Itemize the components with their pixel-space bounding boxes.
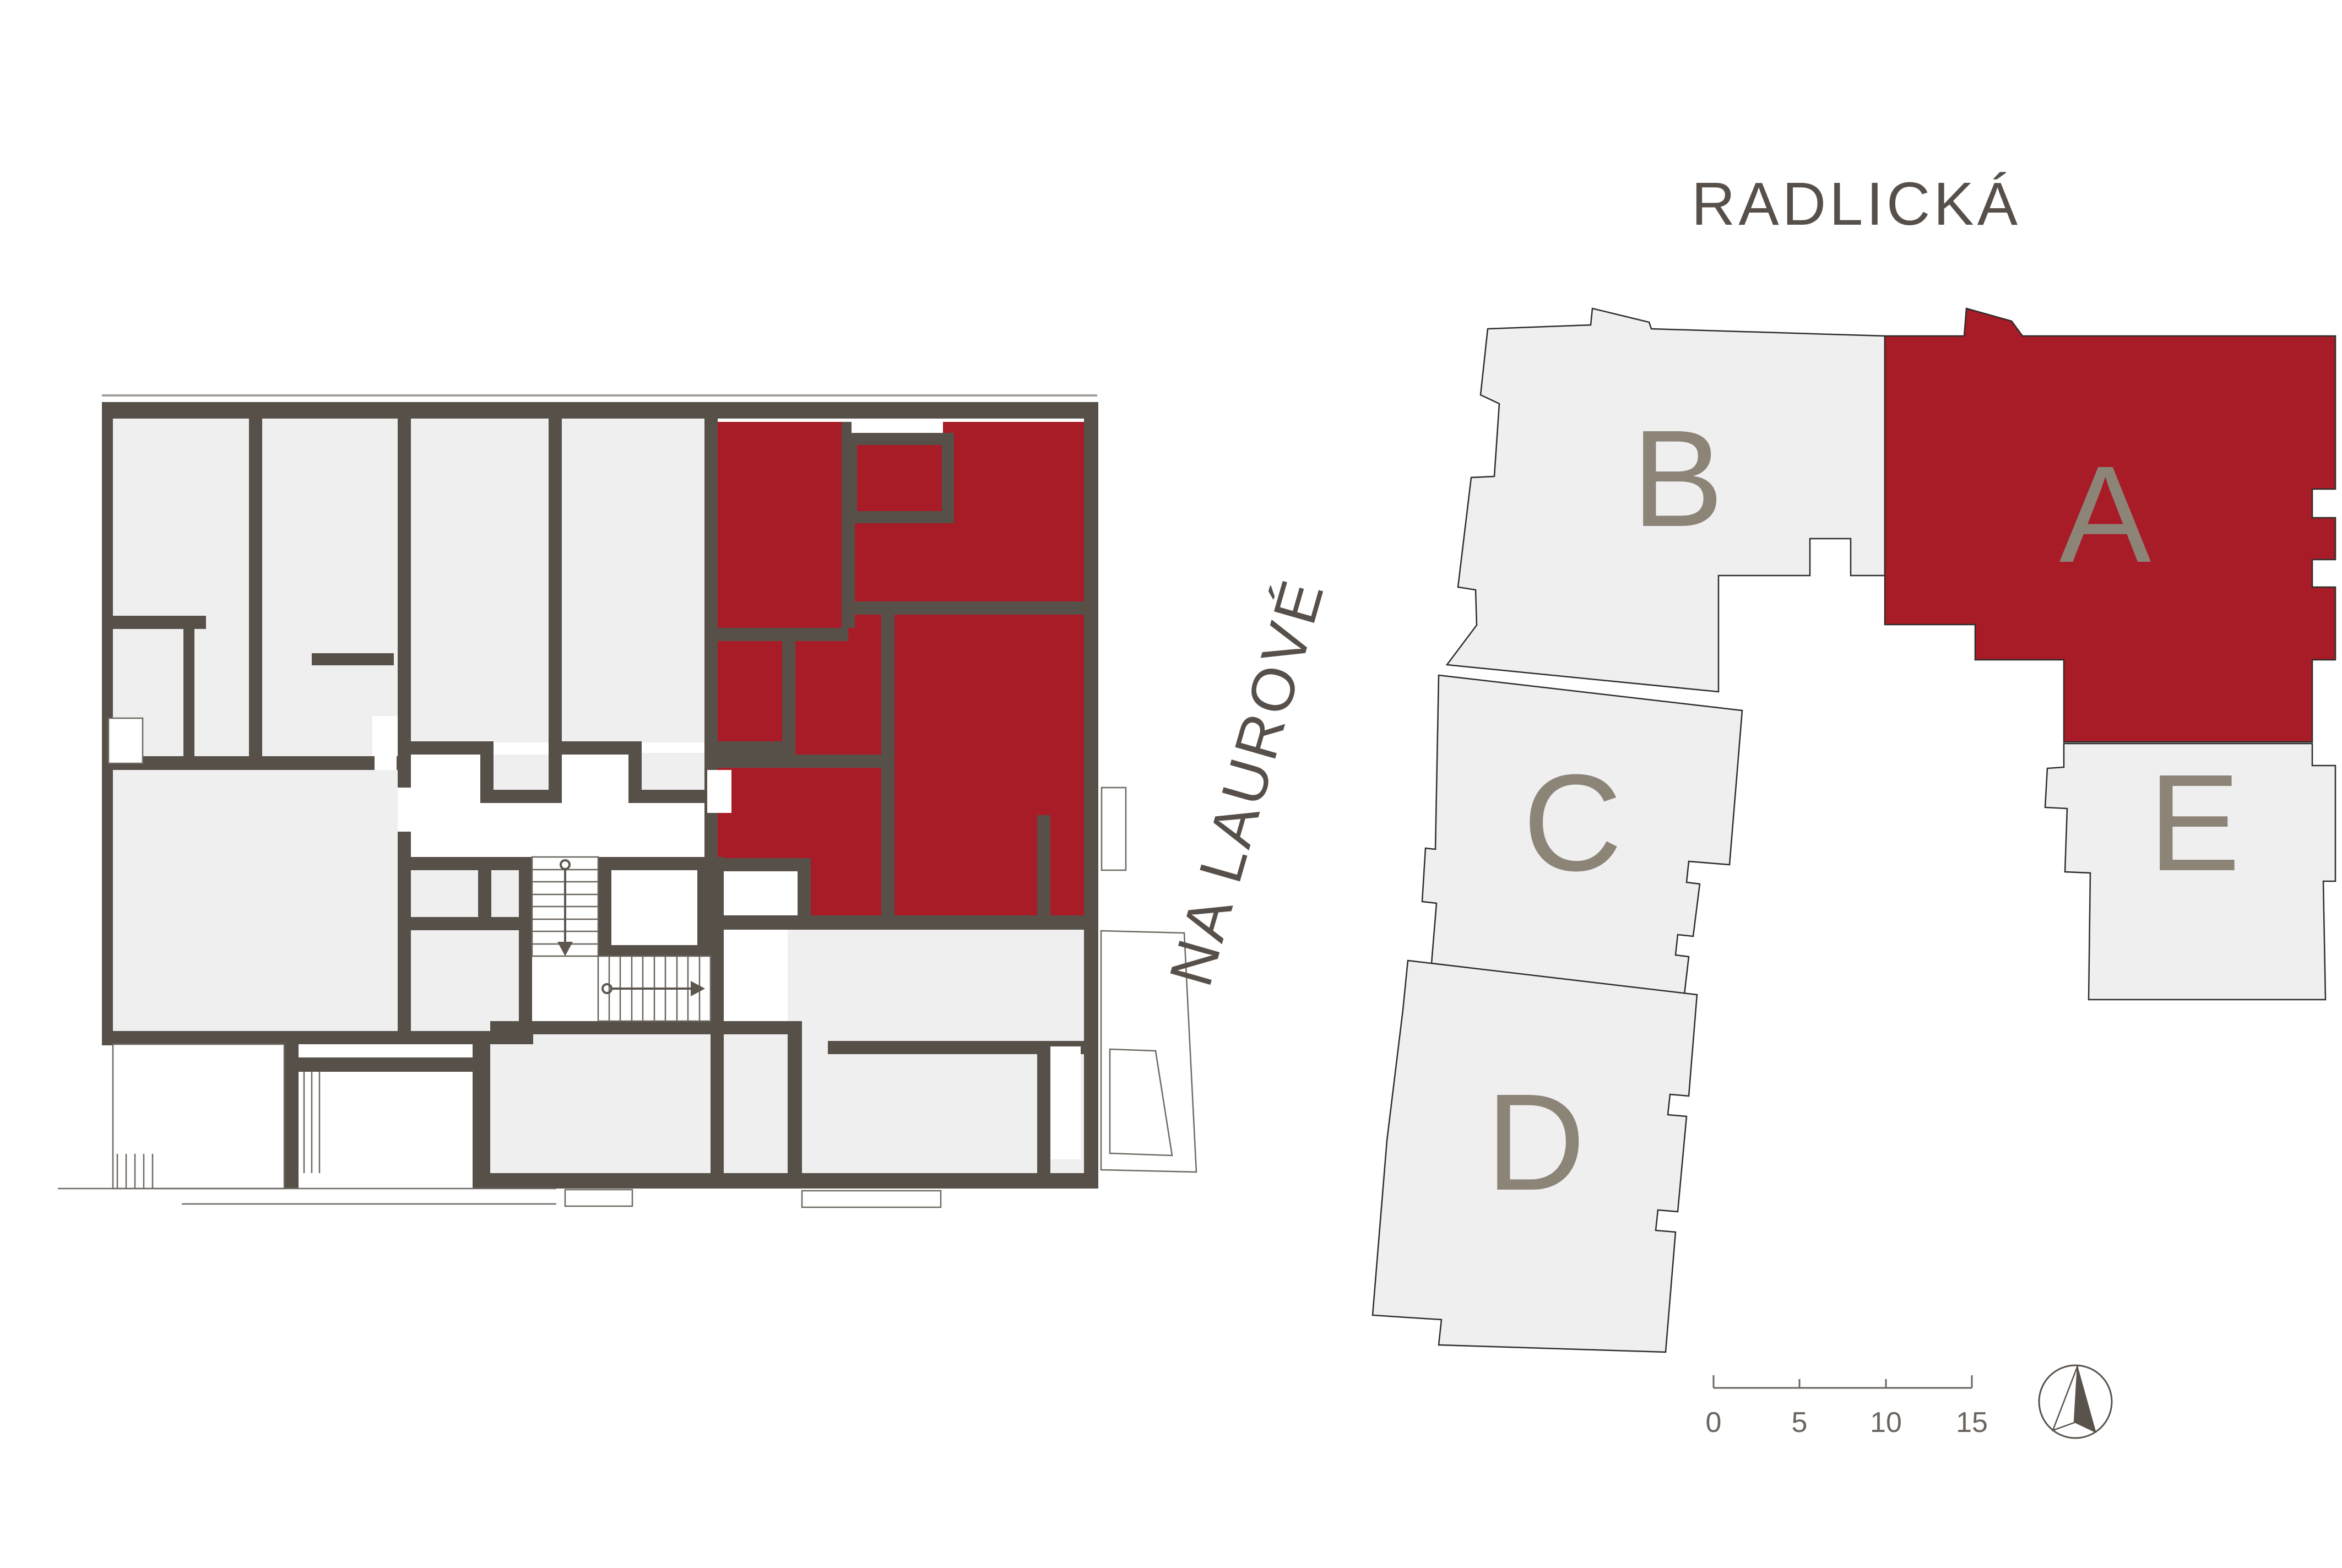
page: A B C D E RADLICKÁ NA LAUROVÉ 0 5 10 15: [0, 0, 2342, 1568]
building-e-letter: E: [2149, 746, 2241, 899]
north-arrow-icon: [2039, 1365, 2112, 1438]
building-d-letter: D: [1486, 1065, 1586, 1219]
loggia-left: [109, 718, 143, 763]
scale-tick-15: 15: [1956, 1407, 1988, 1439]
street-label-na-laurove: NA LAUROVÉ: [1157, 571, 1338, 993]
floor-plan-unit-a[interactable]: [718, 422, 1084, 915]
site-plan: A B C D E RADLICKÁ NA LAUROVÉ 0 5 10 15: [1157, 170, 2335, 1439]
scale-tick-10: 10: [1870, 1407, 1902, 1439]
floor-plan: [58, 394, 1196, 1207]
street-label-radlicka: RADLICKÁ: [1692, 170, 2021, 238]
scale-tick-5: 5: [1792, 1407, 1808, 1439]
plan-canvas: A B C D E RADLICKÁ NA LAUROVÉ 0 5 10 15: [0, 0, 2342, 1568]
scale-bar: [1714, 1375, 1972, 1388]
building-b-letter: B: [1632, 402, 1724, 555]
scale-tick-0: 0: [1706, 1407, 1722, 1439]
building-c-letter: C: [1523, 746, 1623, 899]
building-a-letter: A: [2059, 437, 2151, 591]
